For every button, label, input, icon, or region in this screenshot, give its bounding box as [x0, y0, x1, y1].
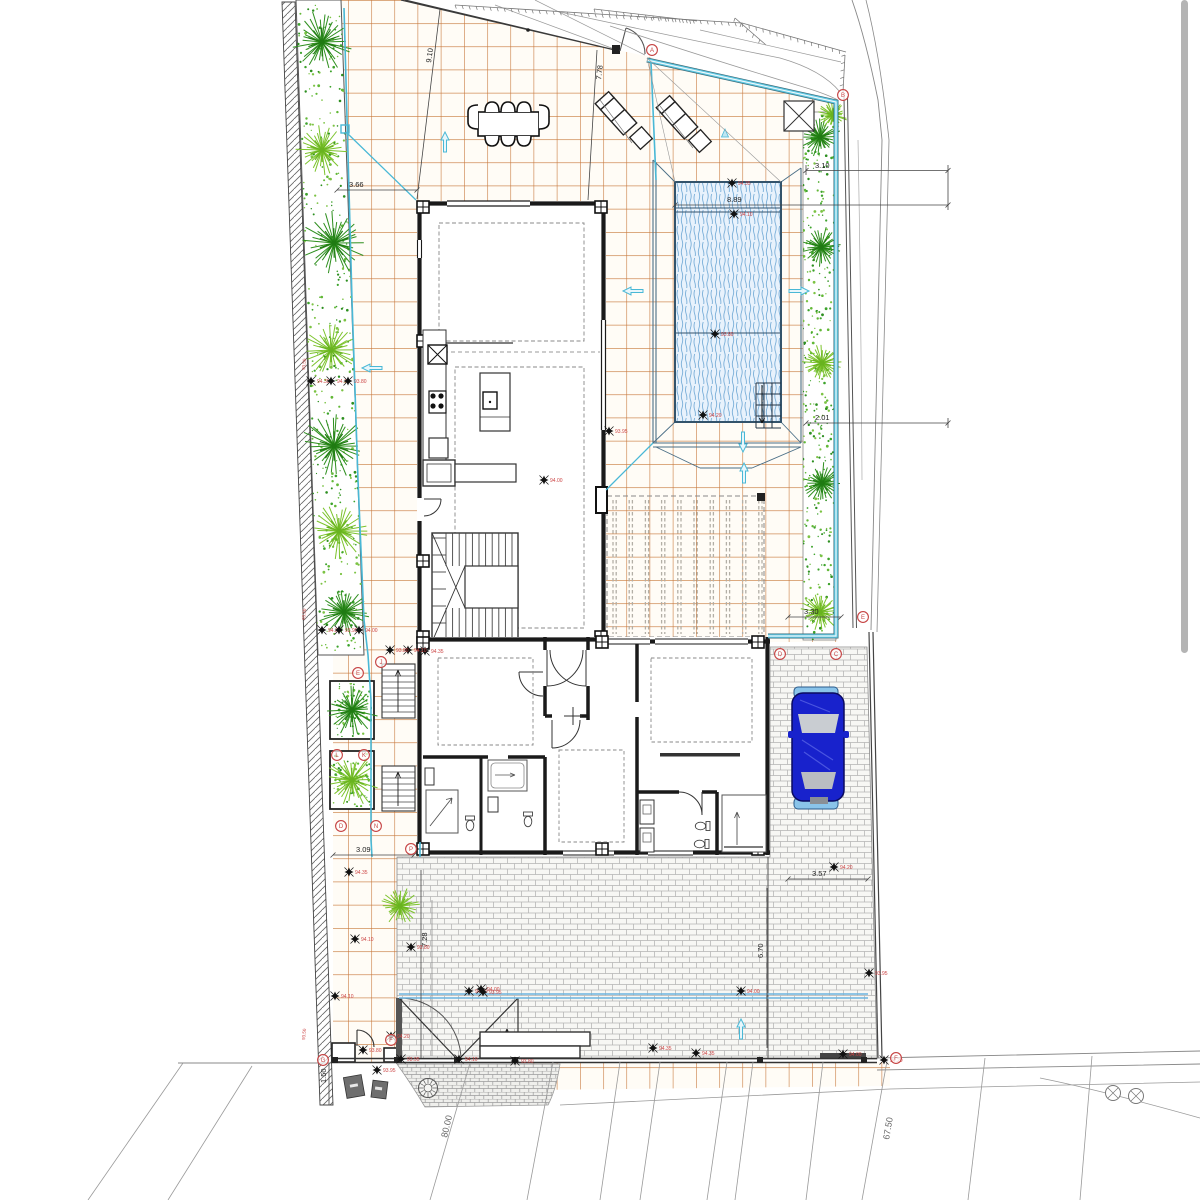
svg-text:G: G	[321, 1058, 326, 1064]
svg-text:1.50: 1.50	[319, 1068, 328, 1083]
svg-text:3.30: 3.30	[804, 607, 819, 616]
svg-text:93.95: 93.95	[875, 971, 888, 977]
svg-text:94.10: 94.10	[414, 648, 427, 654]
svg-text:2.01: 2.01	[815, 413, 830, 422]
svg-text:94.35: 94.35	[355, 870, 368, 876]
svg-text:94.10: 94.10	[341, 994, 354, 1000]
svg-text:93.50: 93.50	[301, 1028, 307, 1040]
svg-text:94.00: 94.00	[550, 478, 563, 484]
svg-text:P: P	[409, 847, 413, 853]
svg-text:93.80: 93.80	[721, 332, 734, 338]
svg-text:8.89: 8.89	[727, 195, 742, 204]
svg-text:94.10: 94.10	[465, 1057, 478, 1063]
svg-text:93.95: 93.95	[383, 1068, 396, 1074]
svg-text:93.80: 93.80	[521, 1059, 534, 1065]
svg-text:93.80: 93.80	[354, 379, 367, 385]
svg-text:94.20: 94.20	[840, 865, 853, 871]
svg-text:J: J	[380, 660, 383, 666]
svg-text:94.20: 94.20	[709, 413, 722, 419]
svg-text:94.35: 94.35	[702, 1051, 715, 1057]
svg-text:E: E	[861, 615, 865, 621]
svg-text:94.10: 94.10	[361, 937, 374, 943]
svg-text:94.35: 94.35	[659, 1046, 672, 1052]
svg-text:93.80: 93.80	[369, 1048, 382, 1054]
svg-text:94.00: 94.00	[747, 989, 760, 995]
svg-text:93.95: 93.95	[407, 1057, 420, 1063]
svg-text:F: F	[894, 1056, 898, 1062]
svg-text:6.70: 6.70	[756, 943, 765, 958]
svg-text:F: F	[389, 1038, 393, 1044]
svg-text:3.57: 3.57	[812, 869, 827, 878]
svg-text:7.78: 7.78	[594, 65, 605, 81]
svg-text:93.80: 93.80	[396, 648, 409, 654]
svg-text:94.00: 94.00	[365, 628, 378, 634]
svg-text:3.09: 3.09	[356, 845, 371, 854]
svg-text:D: D	[339, 824, 344, 830]
svg-text:94.20: 94.20	[397, 1034, 410, 1040]
svg-text:A: A	[650, 48, 654, 54]
svg-text:N: N	[374, 824, 378, 830]
svg-text:93.95: 93.95	[615, 429, 628, 435]
svg-text:94.10: 94.10	[740, 212, 753, 218]
svg-text:94.00: 94.00	[849, 1052, 862, 1058]
svg-text:C: C	[834, 652, 839, 658]
svg-text:94.35: 94.35	[738, 181, 751, 187]
svg-text:3.66: 3.66	[349, 180, 364, 189]
svg-text:K: K	[362, 753, 366, 759]
svg-text:E: E	[356, 671, 360, 677]
svg-text:93.50: 93.50	[301, 608, 307, 620]
svg-text:D: D	[778, 652, 783, 658]
svg-text:93.80: 93.80	[417, 945, 430, 951]
svg-text:3.10: 3.10	[815, 161, 830, 170]
svg-text:94.35: 94.35	[431, 649, 444, 655]
svg-text:94.00: 94.00	[487, 987, 500, 993]
svg-text:B: B	[841, 93, 845, 99]
svg-text:93.50: 93.50	[301, 358, 307, 370]
